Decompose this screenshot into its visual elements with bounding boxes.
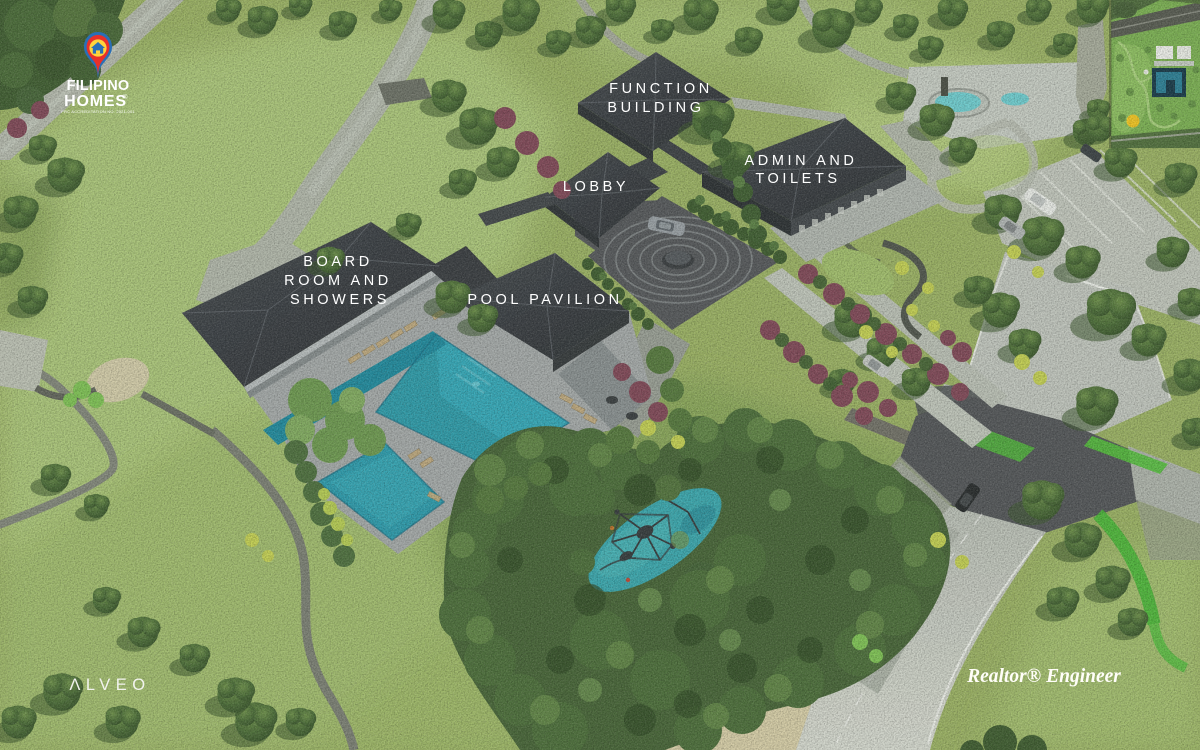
svg-text:®: ® [123, 93, 128, 101]
svg-text:ROOM AND: ROOM AND [284, 273, 392, 289]
svg-text:BUILDING: BUILDING [607, 100, 704, 116]
svg-text:Realtor® Engineer: Realtor® Engineer [966, 666, 1121, 687]
svg-text:ΛLVEO: ΛLVEO [69, 676, 150, 694]
svg-text:LOBBY: LOBBY [563, 179, 629, 195]
svg-text:SHOWERS: SHOWERS [290, 292, 390, 308]
svg-text:FUNCTION: FUNCTION [609, 81, 713, 97]
svg-text:TOILETS: TOILETS [755, 171, 840, 187]
svg-text:FILIPINO: FILIPINO [67, 78, 130, 94]
svg-text:PRC ACCREDITATION NO. 2021-001: PRC ACCREDITATION NO. 2021-001 [61, 109, 135, 114]
svg-text:BOARD: BOARD [303, 254, 373, 270]
svg-text:ADMIN AND: ADMIN AND [745, 153, 858, 169]
svg-text:POOL PAVILION: POOL PAVILION [467, 292, 622, 308]
svg-text:HOMES: HOMES [64, 93, 127, 110]
